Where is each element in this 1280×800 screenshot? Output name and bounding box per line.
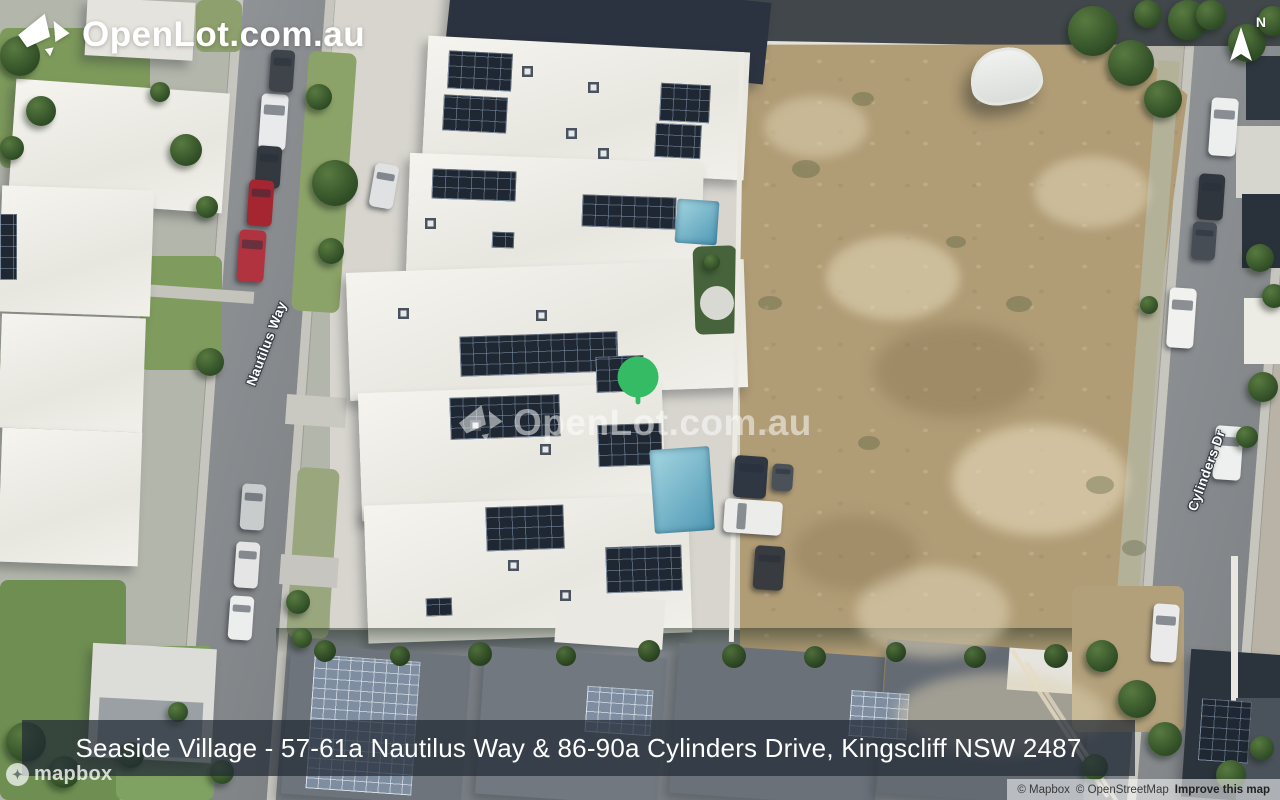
parked-car-white (233, 541, 260, 589)
openlot-logo: OpenLot.com.au (14, 12, 365, 58)
grass-tuft (1086, 476, 1114, 494)
hedge-bush (390, 646, 410, 666)
parked-car-red (246, 179, 274, 227)
driveway (1236, 126, 1280, 198)
tree (1140, 296, 1158, 314)
solar-array (1198, 698, 1252, 763)
hedge-bush (722, 644, 746, 668)
parked-car-white (1208, 97, 1239, 157)
skylight (398, 308, 409, 319)
tree (1196, 0, 1226, 30)
solar-array (485, 505, 564, 552)
parked-car-red (236, 229, 267, 283)
parked-car-white (227, 595, 254, 641)
hedge-bush (314, 640, 336, 662)
lot-car-dark (771, 463, 794, 491)
sand-dark-patch (874, 324, 1040, 418)
townhouse-white (346, 259, 748, 401)
tree (704, 254, 720, 270)
pool (675, 199, 720, 246)
openlot-watermark-icon (456, 403, 504, 443)
property-marker-pin[interactable] (616, 356, 660, 408)
skylight (425, 218, 436, 229)
hedge-bush (638, 640, 660, 662)
solar-array (442, 94, 508, 133)
tree (26, 96, 56, 126)
openlot-logo-icon (14, 12, 72, 58)
tree (1250, 736, 1274, 760)
parked-car-silver (239, 483, 266, 531)
solar-array (0, 214, 17, 280)
skylight (598, 148, 609, 159)
grass-tuft (1122, 540, 1146, 556)
solar-array (426, 598, 453, 617)
tree (150, 82, 170, 102)
north-arrow-icon (1228, 26, 1254, 64)
parked-car-dark (1196, 173, 1225, 221)
mapbox-mark-icon: ✦ (6, 763, 29, 786)
parked-car-dark (1191, 221, 1218, 261)
skylight (588, 82, 599, 93)
lot-van-dark (733, 455, 769, 499)
solar-array (659, 83, 711, 124)
tree (196, 348, 224, 376)
tree (286, 590, 310, 614)
pin-icon (616, 356, 660, 408)
grass-tuft (946, 236, 966, 248)
tree (1262, 284, 1280, 308)
tree (306, 84, 332, 110)
tree (168, 702, 188, 722)
skylight (540, 444, 551, 455)
satellite-map[interactable]: Nautilus Way Cylinders Dr OpenLot.com.au… (0, 0, 1280, 800)
solar-array (654, 123, 702, 159)
tree (1148, 722, 1182, 756)
hedge-bush (468, 642, 492, 666)
solar-array (447, 50, 513, 91)
tree (1248, 372, 1278, 402)
watermark-text: OpenLot.com.au (513, 402, 812, 444)
map-attribution: © Mapbox © OpenStreetMap Improve this ma… (1007, 779, 1280, 800)
solar-array (581, 194, 676, 229)
driveway (285, 394, 347, 428)
house-white (0, 314, 146, 433)
solar-array (605, 545, 683, 594)
tree (1118, 680, 1156, 718)
spa (700, 286, 734, 320)
grass-tuft (852, 92, 874, 106)
tree (1246, 244, 1274, 272)
mapbox-logo[interactable]: ✦ mapbox (6, 763, 112, 786)
grass-tuft (1006, 296, 1032, 312)
grass-tuft (758, 296, 782, 310)
tree (0, 136, 24, 160)
sand-dark-patch (792, 516, 918, 590)
skylight (566, 128, 577, 139)
tree (312, 160, 358, 206)
lot-trailer (753, 545, 786, 591)
tree (292, 628, 312, 648)
tree (1236, 426, 1258, 448)
parked-car-white (1150, 603, 1180, 663)
attribution-improve-link[interactable]: Improve this map (1175, 784, 1270, 796)
compass-north-indicator: N (1226, 14, 1266, 66)
hedge-bush (804, 646, 826, 668)
driveway (279, 554, 339, 588)
property-address-text: Seaside Village - 57-61a Nautilus Way & … (75, 733, 1081, 764)
sand-light-patch (826, 236, 960, 320)
tree (1086, 640, 1118, 672)
skylight (522, 66, 533, 77)
solar-array (432, 169, 517, 202)
house-white (0, 185, 154, 316)
tree (1108, 40, 1154, 86)
parked-van-white (258, 93, 289, 151)
hedge-bush (886, 642, 906, 662)
property-address-banner: Seaside Village - 57-61a Nautilus Way & … (22, 720, 1135, 776)
watermark: OpenLot.com.au (456, 402, 812, 444)
hedge-bush (1044, 644, 1068, 668)
logo-text: OpenLot.com.au (82, 15, 365, 55)
mapbox-logo-text: mapbox (34, 763, 112, 786)
tree (1144, 80, 1182, 118)
grass-tuft (792, 160, 820, 178)
lot-ute-white (723, 498, 783, 536)
tree (318, 238, 344, 264)
tree (1068, 6, 1118, 56)
tree (170, 134, 202, 166)
solar-array (459, 331, 618, 376)
sand-light-patch (764, 96, 868, 158)
house-white (0, 428, 142, 567)
sand-light-patch (1034, 156, 1150, 228)
parked-car-white (1166, 287, 1197, 349)
grass-tuft (858, 436, 880, 450)
hedge-bush (556, 646, 576, 666)
skylight (536, 310, 547, 321)
pool (649, 446, 715, 534)
compass-north-label: N (1256, 14, 1266, 30)
skylight (508, 560, 519, 571)
solar-array (492, 232, 515, 249)
skylight (560, 590, 571, 601)
attribution-mapbox-link[interactable]: © Mapbox (1017, 784, 1070, 796)
tree (1134, 0, 1162, 28)
tree (196, 196, 218, 218)
attribution-osm-link[interactable]: © OpenStreetMap (1076, 784, 1169, 796)
hedge-bush (964, 646, 986, 668)
